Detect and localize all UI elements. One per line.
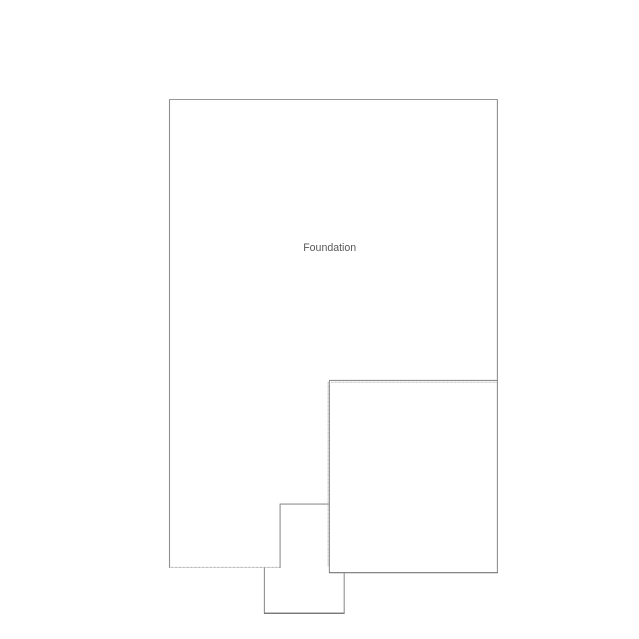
svg-text:Foundation: Foundation bbox=[303, 242, 356, 254]
